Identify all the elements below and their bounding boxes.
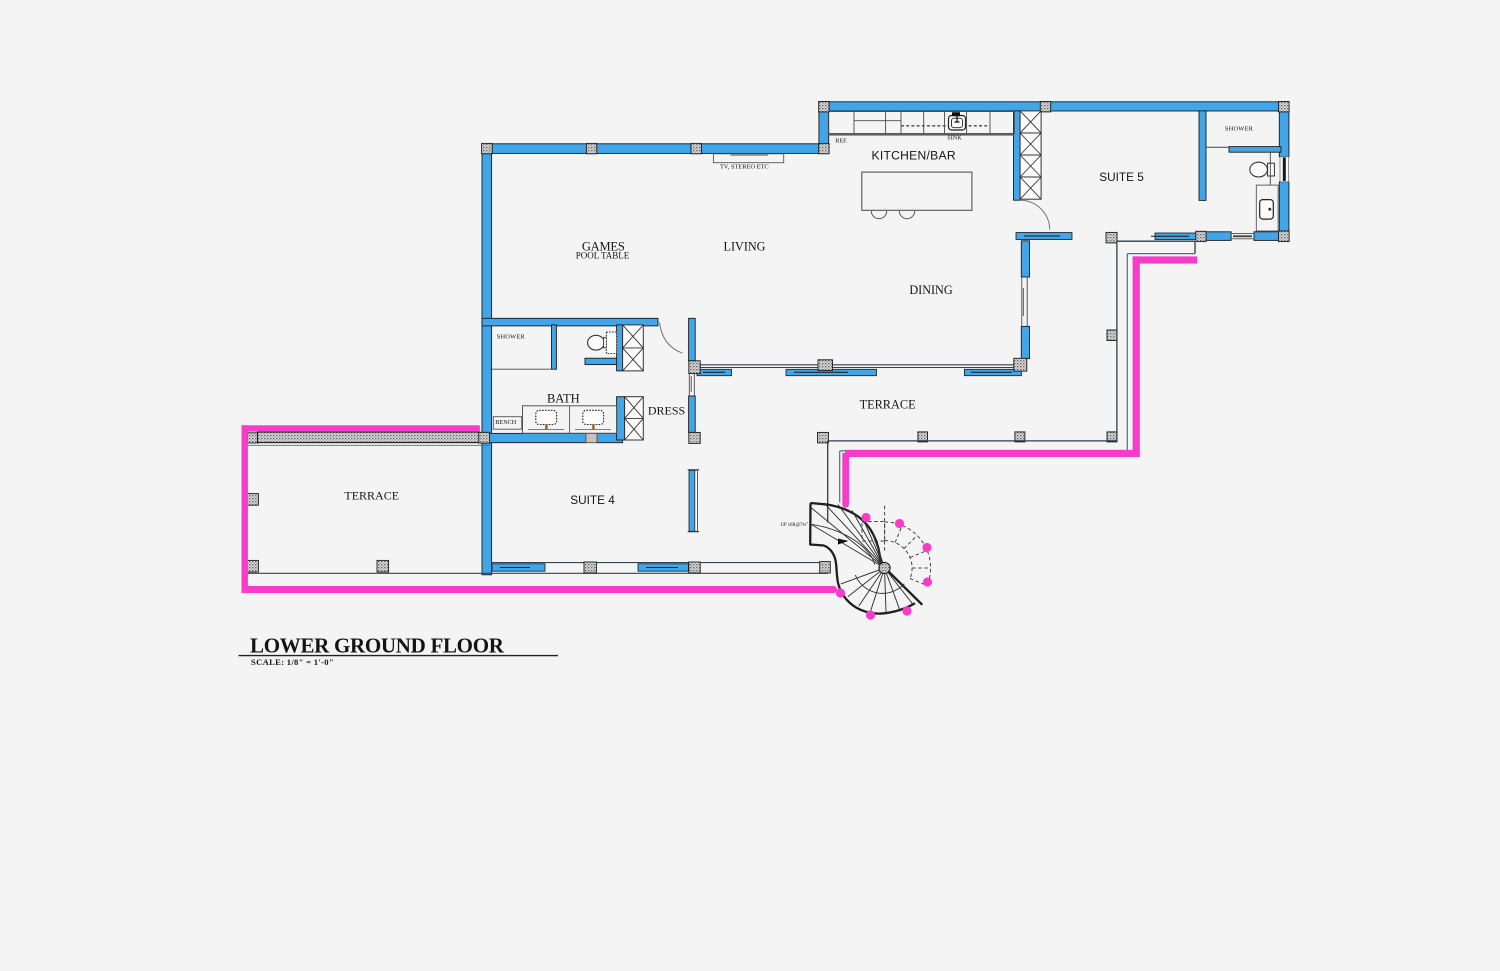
svg-text:SHOWER: SHOWER <box>1225 125 1254 132</box>
svg-text:KITCHEN/BAR: KITCHEN/BAR <box>872 148 956 162</box>
svg-text:SUITE 5: SUITE 5 <box>1099 170 1144 184</box>
svg-text:BATH: BATH <box>547 392 580 406</box>
svg-text:LIVING: LIVING <box>724 240 766 254</box>
svg-text:POOL TABLE: POOL TABLE <box>576 251 630 261</box>
svg-text:LOWER GROUND FLOOR: LOWER GROUND FLOOR <box>250 634 505 658</box>
svg-text:SCALE: 1/8" = 1'-0": SCALE: 1/8" = 1'-0" <box>251 657 334 667</box>
svg-text:REF.: REF. <box>835 138 848 145</box>
svg-text:TERRACE: TERRACE <box>860 397 916 411</box>
svg-text:DRESS: DRESS <box>648 404 685 418</box>
svg-text:UP 16R@7¾": UP 16R@7¾" <box>780 523 808 528</box>
svg-text:SUITE 4: SUITE 4 <box>570 493 615 507</box>
svg-text:SHOWER: SHOWER <box>497 334 526 341</box>
svg-text:TV, STEREO ETC: TV, STEREO ETC <box>720 163 769 170</box>
svg-text:DINING: DINING <box>909 283 953 297</box>
svg-text:BENCH: BENCH <box>495 419 517 426</box>
svg-text:SINK: SINK <box>947 134 962 141</box>
svg-text:TERRACE: TERRACE <box>344 489 399 503</box>
